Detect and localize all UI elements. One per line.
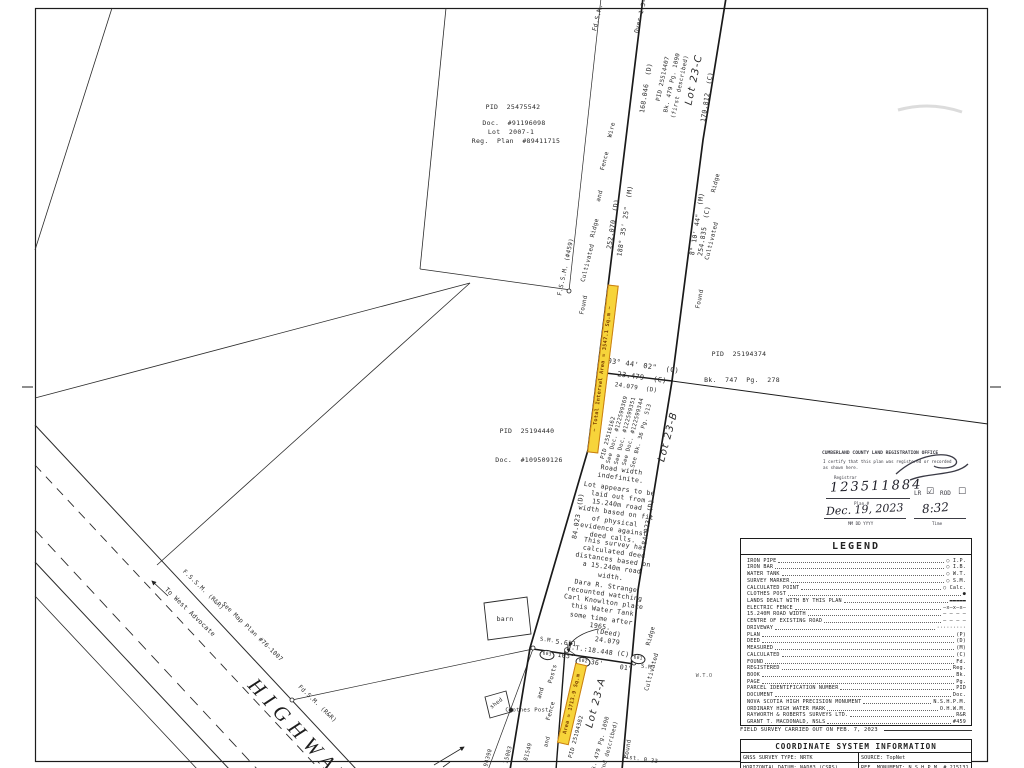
legend-leader-dots bbox=[824, 621, 941, 623]
ridge-upper-label: Ridge bbox=[589, 218, 601, 239]
pid-25194440: PID 25194440 bbox=[500, 427, 555, 435]
over-dist-label: Over 1.5- bbox=[633, 0, 649, 34]
legend-item-symbol: (M) bbox=[956, 645, 966, 651]
dist-168-046: 168.046 (D) bbox=[638, 62, 654, 113]
ridge-right-label: Ridge bbox=[710, 173, 722, 194]
sm-left-label: S.M. bbox=[539, 637, 554, 646]
legend-item-label: CLOTHES POST bbox=[747, 591, 786, 597]
lot-23b: Lot 23-B bbox=[656, 410, 681, 463]
found-right-label: Found bbox=[694, 289, 705, 310]
legend-item-label: ELECTRIC FENCE bbox=[747, 605, 793, 611]
legend-item-symbol: Fd. bbox=[956, 659, 966, 665]
stamp-time-label: Time bbox=[932, 521, 942, 526]
legend-item-symbol: (C) bbox=[956, 652, 966, 658]
legend-item-label: 15.240M ROAD WIDTH bbox=[747, 611, 806, 617]
deg-103: 103° bbox=[557, 651, 575, 661]
doc-91196098: Doc. #91196098 bbox=[482, 119, 545, 127]
clothes-post-label: Clothes Post bbox=[505, 708, 548, 715]
legend-item: NOVA SCOTIA HIGH PRECISION MONUMENTN.S.H… bbox=[747, 698, 966, 705]
legend-item: REGISTEREDReg. bbox=[747, 665, 966, 672]
legend-item-label: PLAN bbox=[747, 632, 760, 638]
wire-label: Wire bbox=[606, 121, 617, 138]
legend-item: ELECTRIC FENCE—x—x—x— bbox=[747, 604, 966, 611]
legend-item-label: PARCEL IDENTIFICATION NUMBER bbox=[747, 685, 838, 691]
legend-item-symbol: PID bbox=[956, 685, 966, 691]
survey-plan-page: Fd.S.M. (Over 1.5-168.046 (D)PID 2551440… bbox=[0, 0, 1024, 768]
doc-109509126: Doc. #109509126 bbox=[495, 456, 562, 464]
legend-item-label: PAGE bbox=[747, 679, 760, 685]
legend-item-symbol: ▬▬▬▬▬ bbox=[950, 598, 966, 604]
legend-item: FOUNDFd. bbox=[747, 658, 966, 665]
and-mid-label: and bbox=[536, 686, 546, 699]
legend-item: CALCULATED POINT○ Calc. bbox=[747, 584, 966, 591]
legend-item-symbol: ○ S.M. bbox=[946, 578, 966, 584]
legend-item-label: RAYWORTH & ROBERTS SURVEYS LTD. bbox=[747, 712, 848, 718]
ref-monument: REF. MONUMENT: N.S.H.P.M. # 215131 bbox=[859, 763, 971, 768]
lot-2007-1: Lot 2007-1 bbox=[488, 128, 534, 136]
legend-leader-dots bbox=[778, 561, 944, 563]
legend-item-label: CENTRE OF EXISTING ROAD bbox=[747, 618, 822, 624]
legend-item-symbol: — – — – bbox=[943, 618, 966, 624]
legend-item: IRON PIPE○ I.P. bbox=[747, 557, 966, 564]
legend-leader-dots bbox=[827, 722, 951, 724]
legend-item-symbol: ○ Calc. bbox=[943, 585, 966, 591]
legend-item-symbol: (D) bbox=[956, 638, 966, 644]
fragment-15003: 15003 bbox=[503, 745, 514, 765]
legend-item-label: ORDINARY HIGH WATER MARK bbox=[747, 706, 825, 712]
legend-item-label: WATER TANK bbox=[747, 571, 780, 577]
legend-leader-dots bbox=[801, 588, 941, 590]
legend-item-symbol: R&R bbox=[956, 712, 966, 718]
legend-rows: IRON PIPE○ I.P.IRON BAR○ I.B.WATER TANK○… bbox=[741, 555, 971, 725]
legend-item-symbol: ········· bbox=[937, 625, 966, 631]
field-survey-note-row: FIELD SURVEY CARRIED OUT ON FEB. 7, 2023 bbox=[740, 727, 972, 733]
stamp-certify-line2: as shown here. bbox=[823, 465, 858, 470]
pid-25194374: PID 25194374 bbox=[712, 350, 767, 358]
legend-item-label: CALCULATED bbox=[747, 652, 780, 658]
legend-item-symbol: Reg. bbox=[953, 665, 966, 671]
legend-leader-dots bbox=[844, 601, 948, 603]
legend-leader-dots bbox=[840, 688, 954, 690]
plan-number-line bbox=[826, 498, 910, 499]
legend-item: PARCEL IDENTIFICATION NUMBERPID bbox=[747, 685, 966, 692]
legend-item: PAGEPg. bbox=[747, 678, 966, 685]
legend-item-label: IRON PIPE bbox=[747, 558, 776, 564]
legend-leader-dots bbox=[827, 709, 937, 711]
legend-leader-dots bbox=[762, 675, 954, 677]
legend-leader-dots bbox=[775, 628, 934, 630]
field-survey-rule bbox=[884, 729, 972, 731]
legend-title: LEGEND bbox=[741, 539, 971, 555]
legend-item-label: IRON BAR bbox=[747, 564, 773, 570]
stamp-date-label: MM DD YYYY bbox=[848, 521, 873, 526]
legend-item-symbol: N.S.H.P.M. bbox=[933, 699, 966, 705]
legend-leader-dots bbox=[762, 635, 954, 637]
legend-item-symbol: Doc. bbox=[953, 692, 966, 698]
legend-item: GRANT T. MACDONALD, NSLS#459 bbox=[747, 718, 966, 725]
legend-item: CENTRE OF EXISTING ROAD— – — – bbox=[747, 617, 966, 624]
legend-item: 15.240M ROAD WIDTH— — — — bbox=[747, 611, 966, 618]
fssm-459-label: F.S.S.M. (#459) bbox=[556, 238, 576, 297]
legend-leader-dots bbox=[850, 715, 954, 717]
barn-label: barn bbox=[497, 615, 514, 623]
legend-item: ORDINARY HIGH WATER MARKO.H.W.M. bbox=[747, 705, 966, 712]
stamp-lr-label: LR bbox=[914, 490, 921, 497]
reg-plan-89411715: Reg. Plan #89411715 bbox=[472, 137, 560, 145]
legend-item-label: NOVA SCOTIA HIGH PRECISION MONUMENT bbox=[747, 699, 861, 705]
c-mark-crossline2: (C) bbox=[616, 649, 630, 659]
time-line bbox=[914, 518, 966, 519]
legend-leader-dots bbox=[782, 655, 955, 657]
and-bottom-label: and bbox=[543, 736, 553, 748]
water-tank-symbol-label: W.T.O bbox=[696, 673, 713, 679]
legend-leader-dots bbox=[762, 682, 954, 684]
stamp-date-value: Dec. 19, 2023 bbox=[826, 501, 904, 518]
legend-leader-dots bbox=[808, 614, 941, 616]
legend-leader-dots bbox=[762, 641, 954, 643]
registration-stamp: CUMBERLAND COUNTY LAND REGISTRATION OFFI… bbox=[820, 446, 972, 538]
bk-747-pg-278: Bk. 747 Pg. 278 bbox=[704, 376, 780, 384]
rod-checkbox: ☐ bbox=[958, 487, 966, 497]
cultivated-upper-label: Cultivated bbox=[580, 243, 597, 283]
legend-item: WATER TANK○ W.T. bbox=[747, 570, 966, 577]
legend-leader-dots bbox=[782, 668, 951, 670]
highlight-area-1713: Area = 1713.9 Sq.m bbox=[557, 663, 587, 746]
table-row: HORIZONTAL DATUM: NAD83 (CSRS) REF. MONU… bbox=[741, 763, 971, 768]
bearing-188-35-25: 188° 35' 25" (M) bbox=[615, 185, 634, 257]
stamp-plan-number: 123511884 bbox=[830, 477, 923, 495]
fragment-94390: 94390 bbox=[483, 748, 494, 768]
gnss-survey-type: GNSS SURVEY TYPE: NRTK bbox=[741, 753, 859, 762]
date-line bbox=[824, 518, 906, 519]
legend-item-symbol: #459 bbox=[953, 719, 966, 725]
legend-item-label: GRANT T. MACDONALD, NSLS bbox=[747, 719, 825, 725]
deed-24-079: (Deed) 24.079 bbox=[594, 627, 621, 647]
legend-item-label: BOOK bbox=[747, 672, 760, 678]
dist-0-33: Dist. 0.33 bbox=[622, 754, 659, 766]
legend-item-symbol: ● bbox=[963, 591, 966, 597]
legend-item-symbol: ○ I.B. bbox=[946, 564, 966, 570]
point-603: 603 bbox=[539, 649, 555, 661]
legend-leader-dots bbox=[788, 594, 961, 596]
fragment-81549: 81549 bbox=[523, 742, 534, 762]
legend-item-label: LANDS DEALT WITH BY THIS PLAN bbox=[747, 598, 842, 604]
legend-item: RAYWORTH & ROBERTS SURVEYS LTD.R&R bbox=[747, 712, 966, 719]
legend-item: SURVEY MARKER○ S.M. bbox=[747, 577, 966, 584]
legend-leader-dots bbox=[863, 702, 931, 704]
legend-leader-dots bbox=[795, 608, 941, 610]
legend-item-label: DOCUMENT bbox=[747, 692, 773, 698]
legend-item: IRON BAR○ I.B. bbox=[747, 564, 966, 571]
fence-upper-label: Fence bbox=[599, 151, 611, 172]
found-left-label: Found bbox=[578, 295, 589, 316]
legend-leader-dots bbox=[765, 662, 954, 664]
legend-item-symbol: Bk. bbox=[956, 672, 966, 678]
legend-item: MEASURED(M) bbox=[747, 644, 966, 651]
legend-item: DEED(D) bbox=[747, 638, 966, 645]
legend-item-symbol: O.H.W.M. bbox=[940, 706, 966, 712]
legend-item: BOOKBk. bbox=[747, 671, 966, 678]
coordinate-system-table: COORDINATE SYSTEM INFORMATION GNSS SURVE… bbox=[740, 739, 972, 768]
legend-leader-dots bbox=[775, 695, 951, 697]
posts-label: Posts bbox=[547, 664, 559, 685]
legend-item-label: SURVEY MARKER bbox=[747, 578, 789, 584]
lr-checkbox: ☑ bbox=[926, 487, 934, 497]
legend-item-label: FOUND bbox=[747, 659, 763, 665]
stamp-rod-label: ROD bbox=[940, 490, 951, 497]
table-row: GNSS SURVEY TYPE: NRTK SOURCE: TopNet bbox=[741, 753, 971, 763]
legend-item: CALCULATED(C) bbox=[747, 651, 966, 658]
legend-leader-dots bbox=[791, 581, 944, 583]
legend-item-symbol: ○ I.P. bbox=[946, 558, 966, 564]
legend-item: CLOTHES POST● bbox=[747, 591, 966, 598]
legend-leader-dots bbox=[775, 567, 944, 569]
note-dara-strange: Dara R. Strange recounted watching Carl … bbox=[560, 576, 646, 635]
legend-item: LANDS DEALT WITH BY THIS PLAN▬▬▬▬▬ bbox=[747, 597, 966, 604]
sec-01: 01" bbox=[619, 663, 633, 673]
legend-item: DRIVEWAY········· bbox=[747, 624, 966, 631]
legend-item-label: MEASURED bbox=[747, 645, 773, 651]
source-value: SOURCE: TopNet bbox=[859, 753, 971, 762]
pid-25475542: PID 25475542 bbox=[486, 103, 541, 111]
and-upper-label: and bbox=[595, 189, 605, 202]
field-survey-note: FIELD SURVEY CARRIED OUT ON FEB. 7, 2023 bbox=[740, 727, 878, 733]
stamp-time-value: 8:32 bbox=[921, 500, 949, 516]
legend-item-symbol: Pg. bbox=[956, 679, 966, 685]
fdsm-top-label: Fd.S.M. ( bbox=[591, 0, 607, 32]
legend-leader-dots bbox=[782, 574, 945, 576]
legend-leader-dots bbox=[775, 648, 954, 650]
shed-label: shed bbox=[489, 697, 505, 711]
coordinate-table-title: COORDINATE SYSTEM INFORMATION bbox=[741, 740, 971, 753]
legend-item-symbol: (P) bbox=[956, 632, 966, 638]
horizontal-datum: HORIZONTAL DATUM: NAD83 (CSRS) bbox=[741, 763, 859, 768]
cultivated-bottom-label: Cultivated bbox=[643, 652, 660, 692]
see-map-plan: See Map Plan #76-1007 bbox=[220, 601, 284, 663]
legend-item-label: DEED bbox=[747, 638, 760, 644]
legend-item: DOCUMENTDoc. bbox=[747, 691, 966, 698]
legend-item-symbol: — — — — bbox=[943, 611, 966, 617]
min-36: 36' bbox=[590, 658, 604, 668]
legend-item-label: DRIVEWAY bbox=[747, 625, 773, 631]
legend-item-label: CALCULATED POINT bbox=[747, 585, 799, 591]
legend-item-symbol: ○ W.T. bbox=[946, 571, 966, 577]
legend-item-label: REGISTERED bbox=[747, 665, 780, 671]
ridge-bottom-label: Ridge bbox=[645, 626, 657, 647]
legend-item-symbol: —x—x—x— bbox=[943, 605, 966, 611]
legend-box: LEGEND IRON PIPE○ I.P.IRON BAR○ I.B.WATE… bbox=[740, 538, 972, 726]
legend-item: PLAN(P) bbox=[747, 631, 966, 638]
